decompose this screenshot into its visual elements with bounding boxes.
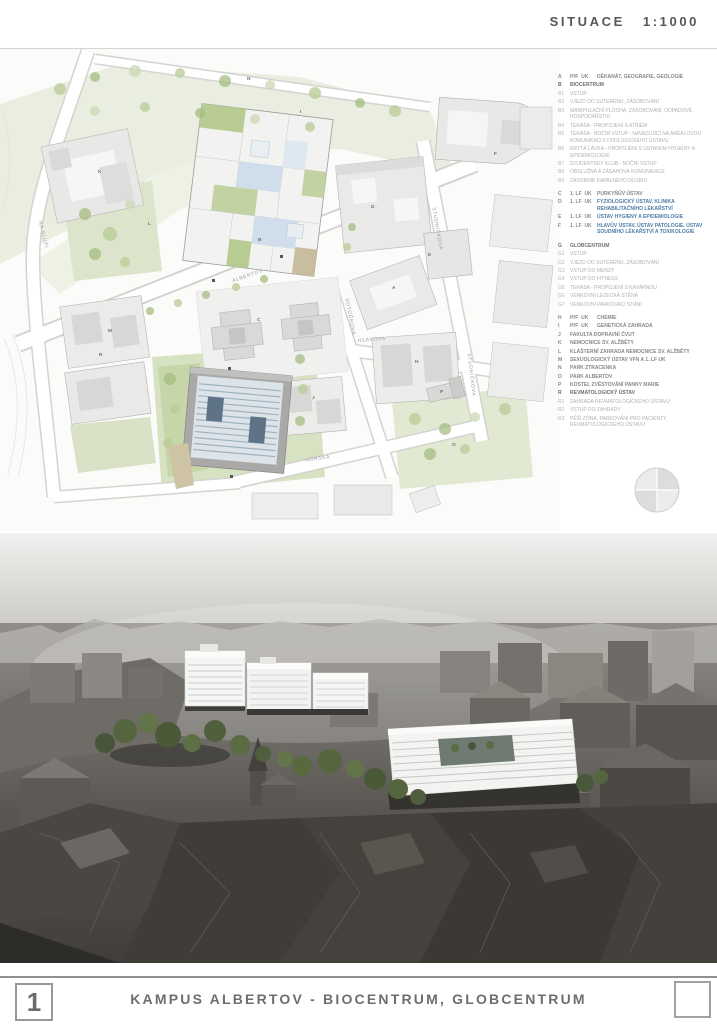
legend-item: B8OBSLUŽNÁ A ZÁSAHOVÁ KOMUNIKACE xyxy=(558,169,715,176)
building-label-k: K xyxy=(98,169,102,175)
presentation-board: SITUACE1:1000 xyxy=(0,0,717,1024)
legend-item: G7VENKOVNÍ PARKOVACÍ STÁNÍ xyxy=(558,302,715,309)
legend-item: B5TERASA - BOČNÍ VSTUP - NAVAZUJÍCÍ NA A… xyxy=(558,131,715,144)
legend-item: G2VJEZD DO SUTERÉNU, ZÁSOBOVÁNÍ xyxy=(558,260,715,267)
building-label-f: F xyxy=(494,151,497,157)
legend-item: IPřF UKGENETICKÁ ZAHRADA xyxy=(558,323,715,330)
legend-item: GGLOBCENTRUM xyxy=(558,243,715,250)
legend-item: MSEXUOLOGICKÝ ÚSTAV VFN A 1. LF UK xyxy=(558,357,715,364)
legend-item: B9ZÁSOBNÍK KAPALNÉHO DUSÍKU xyxy=(558,178,715,185)
legend-item: G1VSTUP xyxy=(558,251,715,258)
legend-item: APřF UKDĚKANÁT, GEOGRAFIE, GEOLOGIE xyxy=(558,74,715,81)
sheet-title: KAMPUS ALBERTOV - BIOCENTRUM, GLOBCENTRU… xyxy=(0,991,717,1007)
legend-item: LKLÁŠTERNÍ ZAHRADA NEMOCNICE SV. ALŽBĚTY xyxy=(558,349,715,356)
legend-item: KNEMOCNICE SV. ALŽBĚTY xyxy=(558,340,715,347)
building-globcentrum xyxy=(182,367,292,474)
aerial-render xyxy=(0,533,717,963)
building-label-g: G xyxy=(214,413,218,419)
legend-item: B3MANIPULAČNÍ PLOCHA, ZÁSOBOVÁNÍ, ODPADO… xyxy=(558,108,715,121)
legend-item: E1. LF UKÚSTAV HYGIENY A EPIDEMIOLOGIE xyxy=(558,214,715,221)
building-label-d: D xyxy=(371,204,375,210)
legend-item: F1. LF UKHLAVŮV ÚSTAV, ÚSTAV PATOLOGIE, … xyxy=(558,223,715,236)
legend-item: NPARK ZTRACENKA xyxy=(558,365,715,372)
scale-label: 1:1000 xyxy=(643,14,699,29)
legend-item: B1VSTUP xyxy=(558,91,715,98)
building-label-r: R xyxy=(99,352,103,358)
building-label-m: M xyxy=(108,328,112,334)
legend-item: R1ZAHRADA REVMATOLOGICKÉHO ÚSTAVU xyxy=(558,399,715,406)
building-label-b: B xyxy=(258,237,262,243)
building-label-o: O xyxy=(452,442,456,448)
legend-item: G6VENKOVNÍ LEZECKÁ STĚNA xyxy=(558,293,715,300)
aerial-render-svg xyxy=(0,533,717,963)
legend-item: B2VJEZD DO SUTERÉNU, ZÁSOBOVÁNÍ xyxy=(558,99,715,106)
footer-empty-box xyxy=(674,981,711,1018)
legend-item: C1. LF UKPURKYŇŮV ÚSTAV xyxy=(558,191,715,198)
title-text: SITUACE xyxy=(550,14,625,29)
legend-item: JFAKULTA DOPRAVNÍ ČVUT xyxy=(558,332,715,339)
building-label-h: H xyxy=(415,359,419,365)
legend-item: HPřF UKCHEMIE xyxy=(558,315,715,322)
legend-item: B7STUDENTSKÝ KLUB - NOČNÍ VSTUP xyxy=(558,161,715,168)
legend-item: G5TERASA - PROPOJENÍ S KAVÁRNOU xyxy=(558,285,715,292)
building-label-l: L xyxy=(148,221,151,227)
legend-item: BBIOCENTRUM xyxy=(558,82,715,89)
legend: APřF UKDĚKANÁT, GEOGRAFIE, GEOLOGIEBBIOC… xyxy=(558,74,715,431)
building-label-n: N xyxy=(247,76,251,82)
legend-item: B6KRYTÁ LÁVKA - PROPOJENÍ S ÚSTAVEM HYGI… xyxy=(558,146,715,159)
footer-rule xyxy=(0,976,717,978)
legend-item: RREVMATOLOGICKÝ ÚSTAV xyxy=(558,390,715,397)
legend-item: R3PĚŠÍ ZÓNA, PARKOVÁNÍ PRO PACIENTY REVM… xyxy=(558,416,715,429)
legend-item: D1. LF UKFYZIOLOGICKÝ ÚSTAV, KLINIKA REH… xyxy=(558,199,715,212)
legend-item: R2VSTUP DO ZAHRADY xyxy=(558,407,715,414)
building-label-c: C xyxy=(257,317,261,323)
legend-item: G4VSTUP DO FITNESS xyxy=(558,276,715,283)
building-label-j: J xyxy=(312,395,315,401)
legend-item: B4TERASA - PROPOJENÍ S ATRIEM xyxy=(558,123,715,130)
page-title: SITUACE1:1000 xyxy=(550,14,699,29)
legend-item: PKOSTEL ZVĚSTOVÁNÍ PANNY MARIE xyxy=(558,382,715,389)
legend-item: OPARK ALBERTOV xyxy=(558,374,715,381)
building-d xyxy=(335,156,432,253)
building-m xyxy=(60,296,150,369)
building-label-a: A xyxy=(392,285,396,291)
building-revmatologicky-r xyxy=(65,362,151,425)
legend-item: G3VSTUP DO MENZY xyxy=(558,268,715,275)
site-plan-svg: NA SLUPI ALBERTOV VOTOČKOVA HLAVOVA STUD… xyxy=(0,49,560,531)
compass-mark-icon xyxy=(633,466,681,514)
site-plan-map: NA SLUPI ALBERTOV VOTOČKOVA HLAVOVA STUD… xyxy=(0,49,560,531)
